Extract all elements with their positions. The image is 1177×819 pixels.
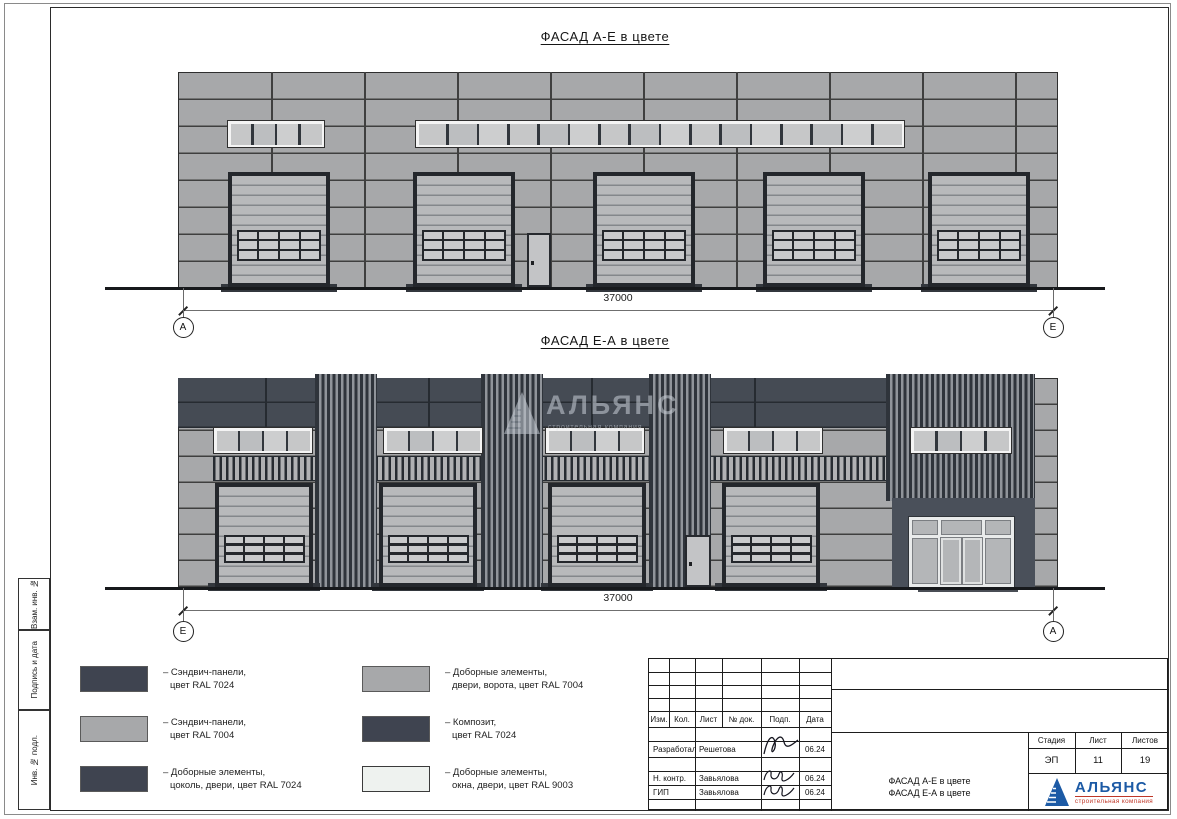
garage-door-pane xyxy=(618,537,635,543)
garage-door-pane xyxy=(390,555,407,561)
garage-door-pane xyxy=(409,537,426,543)
window-pane xyxy=(449,124,477,145)
legend-swatch xyxy=(80,666,148,692)
garage-door-pane xyxy=(409,546,426,552)
side-label-podpis: Подпись и дата xyxy=(30,641,39,699)
side-cell-vzam: Взам. инв. № xyxy=(18,578,50,630)
window-band xyxy=(545,427,645,454)
tb-name: Завьялова xyxy=(696,771,760,785)
garage-door xyxy=(215,483,313,587)
window-pane xyxy=(750,431,771,451)
window-pane xyxy=(620,431,641,451)
transom-pane xyxy=(941,520,982,535)
logo-triangle-icon xyxy=(1045,778,1069,806)
window-pane xyxy=(419,124,447,145)
door-leaf xyxy=(963,538,983,585)
garage-door-pane xyxy=(666,251,684,258)
garage-door-pane xyxy=(836,232,854,239)
garage-door-pane xyxy=(624,251,642,258)
garage-door-pane xyxy=(794,232,812,239)
axis-leader xyxy=(1053,610,1054,621)
company-logo: АЛЬЯНСстроительная компания xyxy=(1031,774,1167,810)
garage-door-pane xyxy=(449,537,466,543)
storefront-grid xyxy=(912,520,1011,584)
window-pane xyxy=(987,431,1009,451)
garage-door-window-grid xyxy=(602,230,687,261)
tb-date: 06.24 xyxy=(799,771,831,785)
dimension-line xyxy=(183,310,1053,311)
facade-ea-title: ФАСАД Е-А в цвете xyxy=(405,333,805,348)
tb-line xyxy=(649,672,831,673)
garage-door-pane xyxy=(980,241,998,248)
window-band xyxy=(723,427,823,454)
garage-door-pane xyxy=(390,537,407,543)
garage-door-pane xyxy=(733,537,750,543)
composite-joint xyxy=(591,378,593,428)
garage-door-pane xyxy=(794,241,812,248)
garage-door-pane xyxy=(794,251,812,258)
garage-door-pane xyxy=(444,251,462,258)
garage-door-pane xyxy=(444,232,462,239)
window-pane xyxy=(458,431,479,451)
legend-swatch xyxy=(362,666,430,692)
tb-sheet-value: 11 xyxy=(1075,748,1121,773)
side-label-vzam: Взам. инв. № xyxy=(30,579,39,629)
legend-swatch xyxy=(362,716,430,742)
tb-sheets-label: Листов xyxy=(1121,732,1169,748)
garage-door-pane xyxy=(666,232,684,239)
window-panes xyxy=(217,431,310,451)
window-pane xyxy=(231,124,252,145)
garage-door-pane xyxy=(598,555,615,561)
window-pane xyxy=(277,124,298,145)
panel-joint xyxy=(736,72,738,288)
garage-door-pane xyxy=(429,537,446,543)
garage-door-pane xyxy=(559,546,576,552)
window-pane xyxy=(798,431,819,451)
garage-door-pane xyxy=(959,232,977,239)
window-pane xyxy=(774,431,795,451)
garage-door-pane xyxy=(259,232,277,239)
garage-door-pane xyxy=(265,537,282,543)
tb-line xyxy=(831,689,1169,690)
composite-joint xyxy=(754,378,756,428)
garage-door-pane xyxy=(578,555,595,561)
side-cell-inv: Инв. № подл. xyxy=(18,710,50,810)
garage-door-pane xyxy=(645,241,663,248)
window-panes xyxy=(419,124,902,145)
garage-door-pane xyxy=(245,555,262,561)
window-pane xyxy=(301,124,322,145)
garage-door-pane xyxy=(259,251,277,258)
garage-door-pane xyxy=(424,232,442,239)
ground-line xyxy=(105,287,1105,291)
garage-door-pane xyxy=(239,251,257,258)
logo-name: АЛЬЯНС xyxy=(1075,780,1148,795)
garage-door-pane xyxy=(424,251,442,258)
garage-door-pane xyxy=(226,555,243,561)
garage-door-pane xyxy=(598,537,615,543)
title-block: Изм.Кол.Лист№ док.Подп.ДатаРазработалРеш… xyxy=(648,658,1168,810)
ground-line xyxy=(105,587,1105,591)
window-pane xyxy=(914,431,936,451)
garage-door-pane xyxy=(733,546,750,552)
garage-door-pane xyxy=(774,251,792,258)
garage-door-pane xyxy=(604,251,622,258)
axis-leader xyxy=(183,610,184,621)
facade-ae-title: ФАСАД А-Е в цвете xyxy=(405,29,805,44)
window-pane xyxy=(874,124,902,145)
garage-door-pane xyxy=(280,232,298,239)
side-cell-podpis: Подпись и дата xyxy=(18,630,50,710)
window-pane xyxy=(479,124,507,145)
garage-door-window-grid xyxy=(731,535,812,563)
garage-door-window-grid xyxy=(224,535,305,563)
window-pane xyxy=(596,431,617,451)
garage-door-pane xyxy=(285,546,302,552)
man-door xyxy=(685,535,711,587)
tb-stage-value: ЭП xyxy=(1028,748,1075,773)
window-pane xyxy=(540,124,568,145)
window-pane xyxy=(631,124,659,145)
garage-door-pane xyxy=(285,537,302,543)
tb-header-cell: Подп. xyxy=(761,711,799,727)
logo-text: АЛЬЯНСстроительная компания xyxy=(1075,780,1153,805)
window-pane xyxy=(661,124,689,145)
window-pane xyxy=(752,124,780,145)
tb-date: 06.24 xyxy=(799,785,831,799)
garage-door-pane xyxy=(444,241,462,248)
garage-door-pane xyxy=(815,251,833,258)
garage-door-pane xyxy=(265,546,282,552)
garage-door-pane xyxy=(409,555,426,561)
garage-door-window-grid xyxy=(422,230,507,261)
garage-door-window-grid xyxy=(388,535,469,563)
garage-door-pane xyxy=(301,251,319,258)
garage-door-pane xyxy=(752,546,769,552)
panel-joint xyxy=(364,72,366,288)
garage-door-pane xyxy=(792,546,809,552)
window-pane xyxy=(288,431,309,451)
sidelight-pane xyxy=(985,538,1011,585)
garage-door-pane xyxy=(980,232,998,239)
garage-door-pane xyxy=(836,241,854,248)
garage-door-pane xyxy=(578,537,595,543)
tb-role: Н. контр. xyxy=(650,771,695,785)
logo-subtitle: строительная компания xyxy=(1075,796,1153,805)
garage-door-pane xyxy=(624,232,642,239)
garage-door-pane xyxy=(815,241,833,248)
garage-door-pane xyxy=(245,537,262,543)
tb-line xyxy=(649,685,831,686)
door-handle-icon xyxy=(531,261,534,266)
garage-door-pane xyxy=(792,537,809,543)
garage-door-pane xyxy=(245,546,262,552)
garage-door-pane xyxy=(772,546,789,552)
tb-line xyxy=(649,727,831,728)
window-pane xyxy=(387,431,408,451)
tb-header-cell: Изм. xyxy=(649,711,669,727)
garage-door-pane xyxy=(815,232,833,239)
garage-door-window-grid xyxy=(557,535,638,563)
garage-door-pane xyxy=(604,232,622,239)
garage-door-pane xyxy=(239,241,257,248)
window-band xyxy=(383,427,483,454)
window-pane xyxy=(601,124,629,145)
garage-door-pane xyxy=(1001,232,1019,239)
window-pane xyxy=(813,124,841,145)
garage-door-pane xyxy=(645,232,663,239)
garage-door-pane xyxy=(424,241,442,248)
window-panes xyxy=(914,431,1009,451)
entrance-double-door xyxy=(941,538,982,585)
tb-line xyxy=(649,757,831,758)
tb-line xyxy=(649,698,831,699)
garage-door-pane xyxy=(449,546,466,552)
louver-strip xyxy=(481,374,543,588)
garage-door-pane xyxy=(624,241,642,248)
window-panes xyxy=(387,431,480,451)
garage-door-pane xyxy=(486,251,504,258)
entrance-storefront xyxy=(908,516,1015,588)
garage-door xyxy=(548,483,646,587)
dimension-value: 37000 xyxy=(518,592,718,604)
window-pane xyxy=(692,124,720,145)
tb-name: Завьялова xyxy=(696,785,760,799)
tb-line xyxy=(649,799,831,800)
legend-swatch xyxy=(80,716,148,742)
garage-door xyxy=(228,172,330,287)
tb-sheets-value: 19 xyxy=(1121,748,1169,773)
sidelight-pane xyxy=(912,538,938,585)
garage-door-pane xyxy=(486,241,504,248)
garage-door-pane xyxy=(939,241,957,248)
window-pane xyxy=(410,431,431,451)
tb-header-cell: № док. xyxy=(722,711,761,727)
garage-door-pane xyxy=(559,555,576,561)
garage-door-pane xyxy=(959,241,977,248)
transom-pane xyxy=(912,520,938,535)
window-pane xyxy=(549,431,570,451)
garage-door xyxy=(413,172,515,287)
legend-swatch xyxy=(362,766,430,792)
garage-door-pane xyxy=(604,241,622,248)
garage-door xyxy=(593,172,695,287)
garage-door-window-grid xyxy=(772,230,857,261)
transom-pane xyxy=(985,520,1011,535)
garage-door-pane xyxy=(449,555,466,561)
garage-door-pane xyxy=(959,251,977,258)
garage-door-pane xyxy=(429,546,446,552)
tb-header-cell: Лист xyxy=(695,711,722,727)
louver-strip xyxy=(315,374,377,588)
garage-door-pane xyxy=(429,555,446,561)
window-pane xyxy=(217,431,238,451)
window-panes xyxy=(231,124,322,145)
dimension-value: 37000 xyxy=(518,292,718,304)
tb-header-cell: Дата xyxy=(799,711,831,727)
garage-door-pane xyxy=(1001,241,1019,248)
garage-door-pane xyxy=(752,537,769,543)
tb-header-cell: Кол. xyxy=(669,711,695,727)
window-pane xyxy=(572,431,593,451)
signature xyxy=(761,780,797,800)
legend-swatch xyxy=(80,766,148,792)
garage-door-pane xyxy=(666,241,684,248)
tb-line xyxy=(831,659,832,811)
window-panes xyxy=(549,431,642,451)
garage-door xyxy=(379,483,477,587)
axis-bubble: Е xyxy=(1043,317,1064,338)
garage-door-pane xyxy=(733,555,750,561)
garage-door-pane xyxy=(598,546,615,552)
garage-door-pane xyxy=(774,241,792,248)
window-pane xyxy=(843,124,871,145)
garage-door-pane xyxy=(226,546,243,552)
signature-icon xyxy=(761,780,797,800)
axis-leader xyxy=(1053,310,1054,317)
garage-door xyxy=(928,172,1030,287)
window-pane xyxy=(254,124,275,145)
composite-joint xyxy=(428,378,430,428)
tb-role: Разработал xyxy=(650,741,695,757)
tb-role: ГИП xyxy=(650,785,695,799)
tb-sheet-label: Лист xyxy=(1075,732,1121,748)
garage-door xyxy=(722,483,820,587)
window-band xyxy=(227,120,325,148)
garage-door-pane xyxy=(465,241,483,248)
tb-date: 06.24 xyxy=(799,741,831,757)
window-pane xyxy=(938,431,960,451)
garage-door-pane xyxy=(301,232,319,239)
garage-door-pane xyxy=(285,555,302,561)
garage-door-pane xyxy=(259,241,277,248)
garage-door-pane xyxy=(280,251,298,258)
window-pane xyxy=(434,431,455,451)
garage-door-pane xyxy=(280,241,298,248)
window-pane xyxy=(264,431,285,451)
garage-door xyxy=(763,172,865,287)
garage-door-pane xyxy=(465,251,483,258)
garage-door-pane xyxy=(774,232,792,239)
tb-doc-title-line2: ФАСАД Е-А в цвете xyxy=(833,787,1026,799)
garage-door-pane xyxy=(980,251,998,258)
axis-bubble: А xyxy=(1043,621,1064,642)
garage-door-pane xyxy=(465,232,483,239)
garage-door-pane xyxy=(752,555,769,561)
drawing-sheet: Взам. инв. № Подпись и дата Инв. № подл.… xyxy=(0,0,1177,819)
signature-icon xyxy=(760,732,800,758)
garage-door-pane xyxy=(1001,251,1019,258)
door-leaf xyxy=(941,538,961,585)
window-pane xyxy=(727,431,748,451)
door-handle-icon xyxy=(689,562,692,567)
garage-door-window-grid xyxy=(937,230,1022,261)
axis-bubble: Е xyxy=(173,621,194,642)
panel-joint xyxy=(922,72,924,288)
garage-door-pane xyxy=(939,232,957,239)
garage-door-pane xyxy=(390,546,407,552)
window-pane xyxy=(570,124,598,145)
window-pane xyxy=(510,124,538,145)
tb-doc-title-line1: ФАСАД А-Е в цвете xyxy=(833,775,1026,787)
axis-leader xyxy=(183,310,184,317)
garage-door-window-grid xyxy=(237,230,322,261)
garage-door-pane xyxy=(559,537,576,543)
garage-door-pane xyxy=(772,555,789,561)
garage-door-pane xyxy=(645,251,663,258)
dimension-line xyxy=(183,610,1053,611)
garage-door-pane xyxy=(226,537,243,543)
garage-door-pane xyxy=(265,555,282,561)
garage-door-pane xyxy=(618,546,635,552)
garage-door-pane xyxy=(939,251,957,258)
window-band xyxy=(213,427,313,454)
window-pane xyxy=(962,431,984,451)
composite-joint xyxy=(265,378,267,428)
window-pane xyxy=(783,124,811,145)
tb-name: Решетова xyxy=(696,741,760,757)
garage-door-pane xyxy=(618,555,635,561)
signature xyxy=(760,732,800,758)
side-label-inv: Инв. № подл. xyxy=(30,735,39,785)
tb-stage-label: Стадия xyxy=(1028,732,1075,748)
garage-door-pane xyxy=(486,232,504,239)
garage-door-pane xyxy=(239,232,257,239)
garage-door-pane xyxy=(792,555,809,561)
garage-door-pane xyxy=(772,537,789,543)
window-band xyxy=(415,120,905,148)
axis-bubble: А xyxy=(173,317,194,338)
window-pane xyxy=(722,124,750,145)
tb-doc-title: ФАСАД А-Е в цветеФАСАД Е-А в цвете xyxy=(833,775,1026,809)
window-pane xyxy=(240,431,261,451)
man-door xyxy=(527,233,551,287)
garage-door-pane xyxy=(836,251,854,258)
window-panes xyxy=(727,431,820,451)
window-band xyxy=(910,427,1012,454)
garage-door-pane xyxy=(301,241,319,248)
garage-door-pane xyxy=(578,546,595,552)
